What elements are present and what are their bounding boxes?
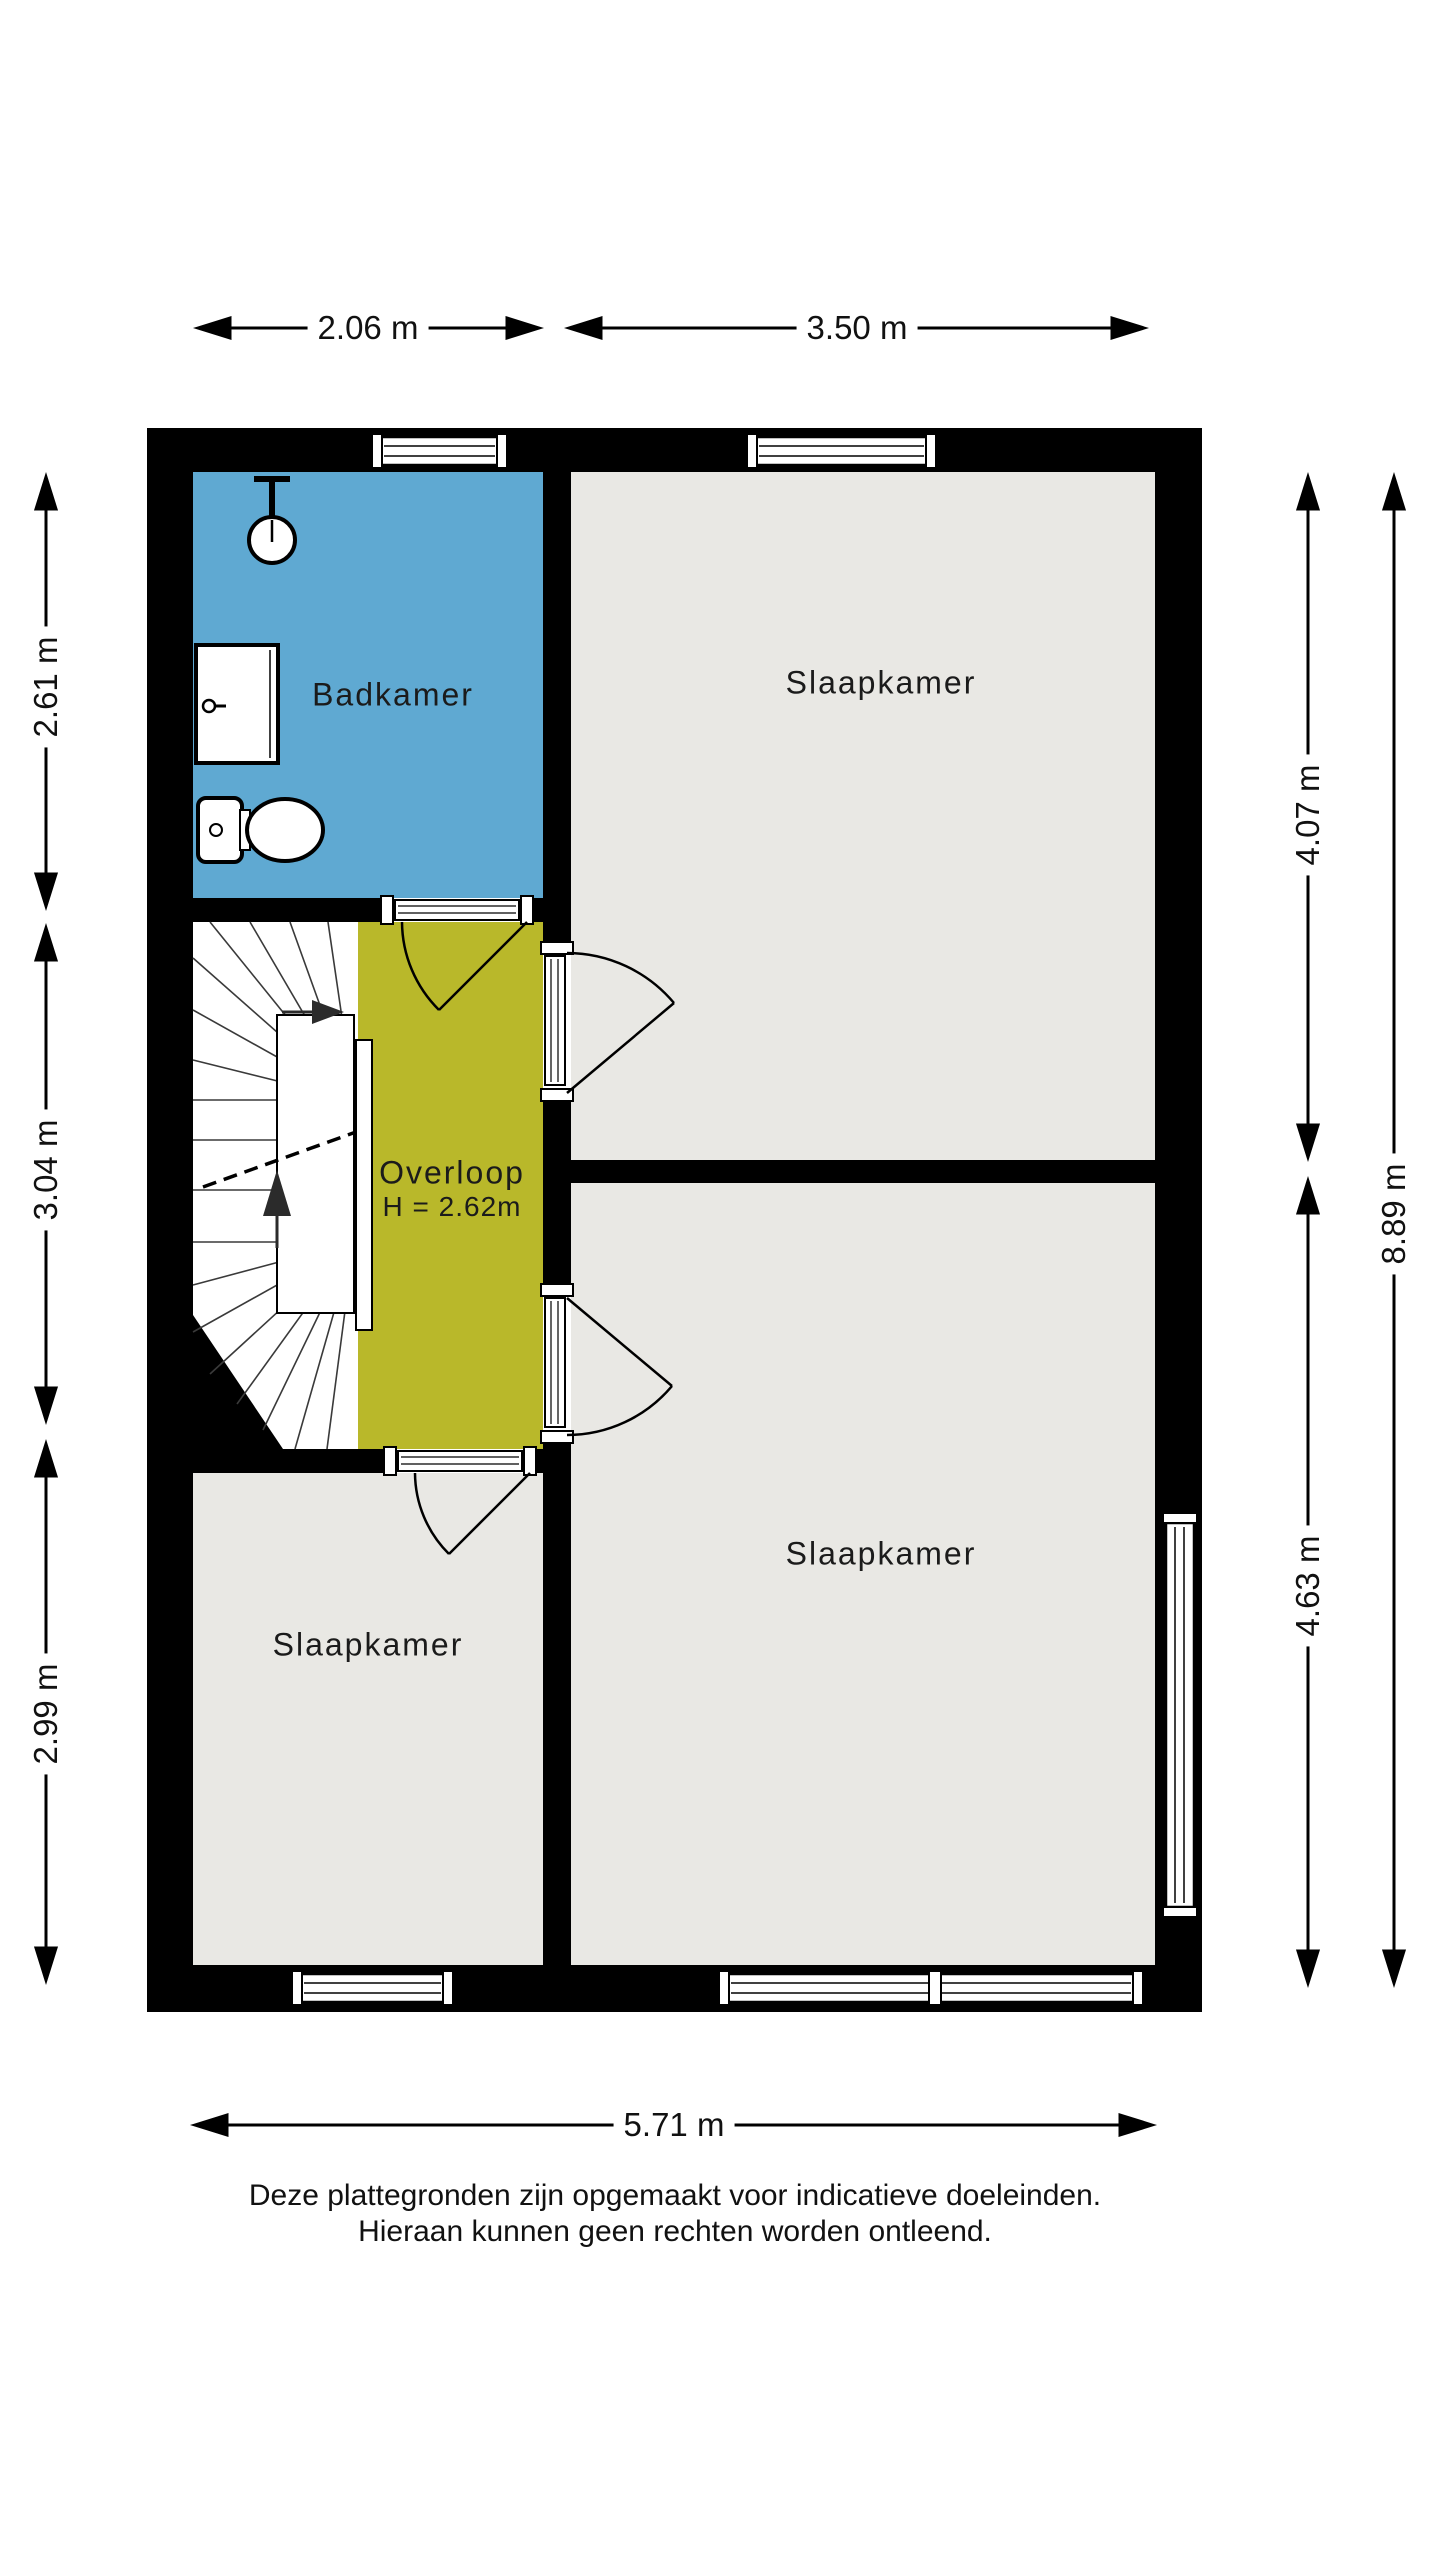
disclaimer-line-2: Hieraan kunnen geen rechten worden ontle… xyxy=(358,2215,992,2249)
floor-plan xyxy=(0,0,1440,2560)
room-label-overloop-height: H = 2.62m xyxy=(383,1191,522,1223)
shower-tray-icon xyxy=(196,645,278,763)
dimension-label-right-total: 8.89 m xyxy=(1373,1154,1415,1275)
room-label-overloop: Overloop xyxy=(379,1155,525,1192)
room-label-slaapkamer-bottom-right: Slaapkamer xyxy=(786,1536,977,1573)
slaapkamer-top-right-floor xyxy=(571,472,1155,1160)
room-label-slaapkamer-bottom-left: Slaapkamer xyxy=(273,1627,464,1664)
dimension-label-bottom: 5.71 m xyxy=(614,2104,735,2146)
room-label-slaapkamer-top-right: Slaapkamer xyxy=(786,665,977,702)
floorplan-page: Badkamer Slaapkamer Overloop H = 2.62m S… xyxy=(0,0,1440,2560)
dimension-label-left-middle: 3.04 m xyxy=(25,1110,67,1231)
dimension-label-right-bottom: 4.63 m xyxy=(1287,1526,1329,1647)
window-slaapkamer-bottom-right xyxy=(719,1971,1143,2005)
dimension-label-right-top: 4.07 m xyxy=(1287,755,1329,876)
window-badkamer-top xyxy=(372,434,507,468)
toilet-icon xyxy=(198,798,323,862)
dimension-label-left-top: 2.61 m xyxy=(25,627,67,748)
dimension-label-top-left: 2.06 m xyxy=(308,307,429,349)
slaapkamer-bottom-left-floor xyxy=(193,1473,543,1965)
stair-stringer xyxy=(356,1040,372,1330)
slaapkamer-bottom-right-floor xyxy=(571,1183,1155,1965)
window-slaapkamer-bottom-left xyxy=(292,1971,453,2005)
room-label-badkamer: Badkamer xyxy=(312,677,474,714)
window-slaapkamer-right xyxy=(1163,1513,1197,1917)
window-slaapkamer-top xyxy=(747,434,936,468)
dimension-label-left-bottom: 2.99 m xyxy=(25,1654,67,1775)
disclaimer-line-1: Deze plattegronden zijn opgemaakt voor i… xyxy=(249,2179,1101,2213)
stair-railing xyxy=(277,1015,354,1313)
dimension-label-top-right: 3.50 m xyxy=(797,307,918,349)
